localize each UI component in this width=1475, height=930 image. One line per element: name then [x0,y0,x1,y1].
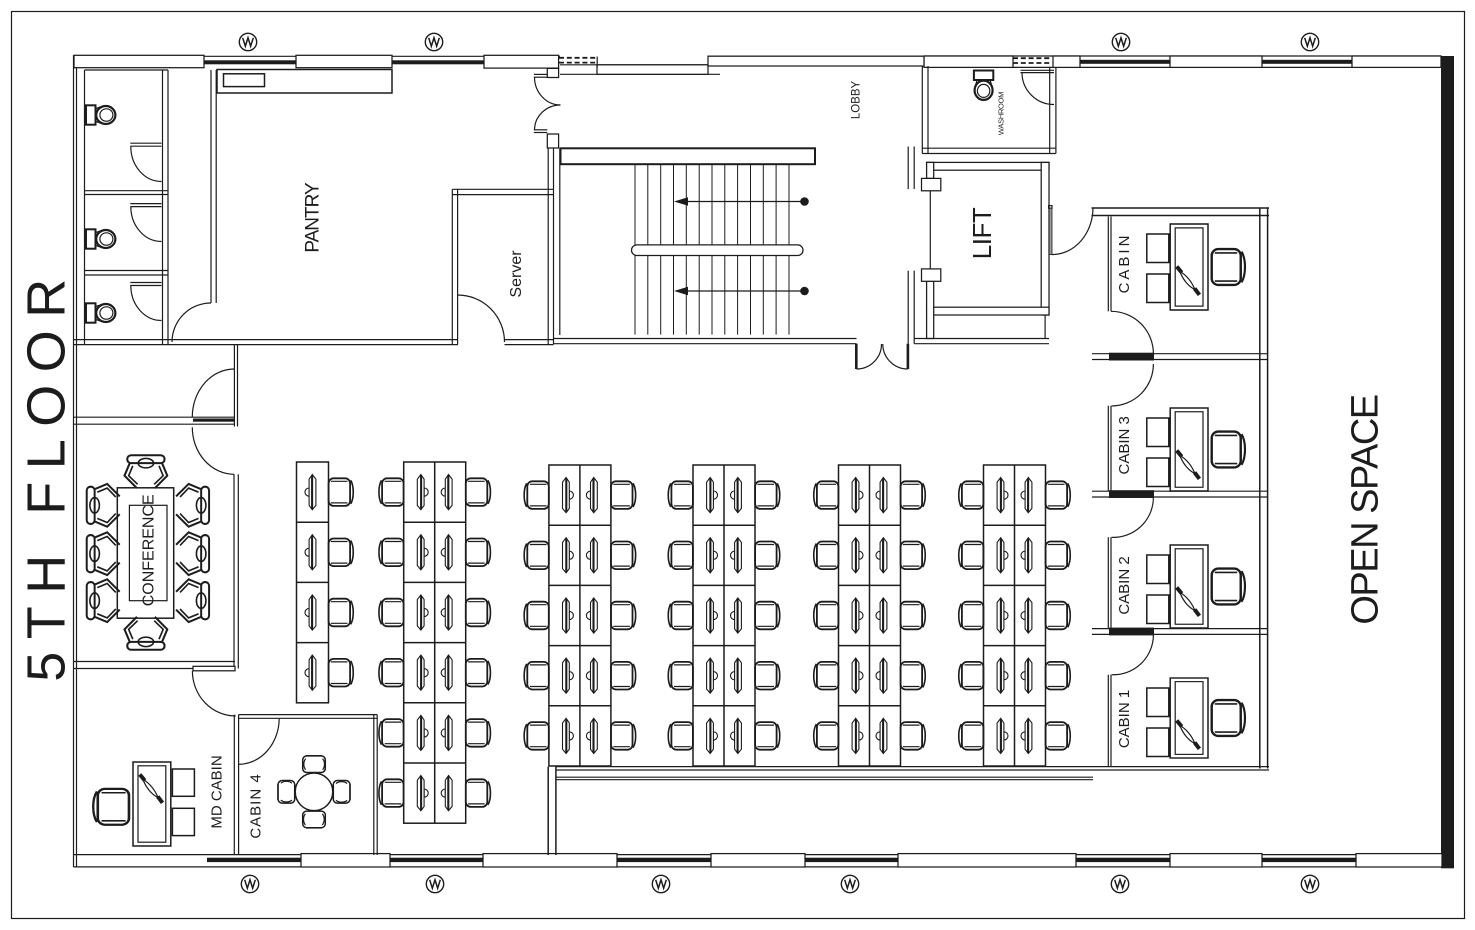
svg-text:LOBBY: LOBBY [851,80,863,119]
svg-text:CONFERENCE: CONFERENCE [140,494,157,606]
svg-text:LIFT: LIFT [967,207,997,259]
svg-text:PANTRY: PANTRY [303,182,324,253]
svg-text:CABIN 4: CABIN 4 [248,773,265,838]
svg-text:CABIN 3: CABIN 3 [1116,416,1133,474]
svg-text:CABIN: CABIN [1116,233,1133,294]
svg-text:WASHROOM: WASHROOM [997,92,1006,135]
svg-text:5TH FLOOR: 5TH FLOOR [17,266,77,682]
svg-text:CABIN 2: CABIN 2 [1116,556,1133,614]
svg-text:Server: Server [508,250,525,298]
svg-text:OPEN SPACE: OPEN SPACE [1345,395,1387,624]
svg-text:CABIN 1: CABIN 1 [1116,690,1133,748]
svg-text:MD CABIN: MD CABIN [209,755,226,828]
